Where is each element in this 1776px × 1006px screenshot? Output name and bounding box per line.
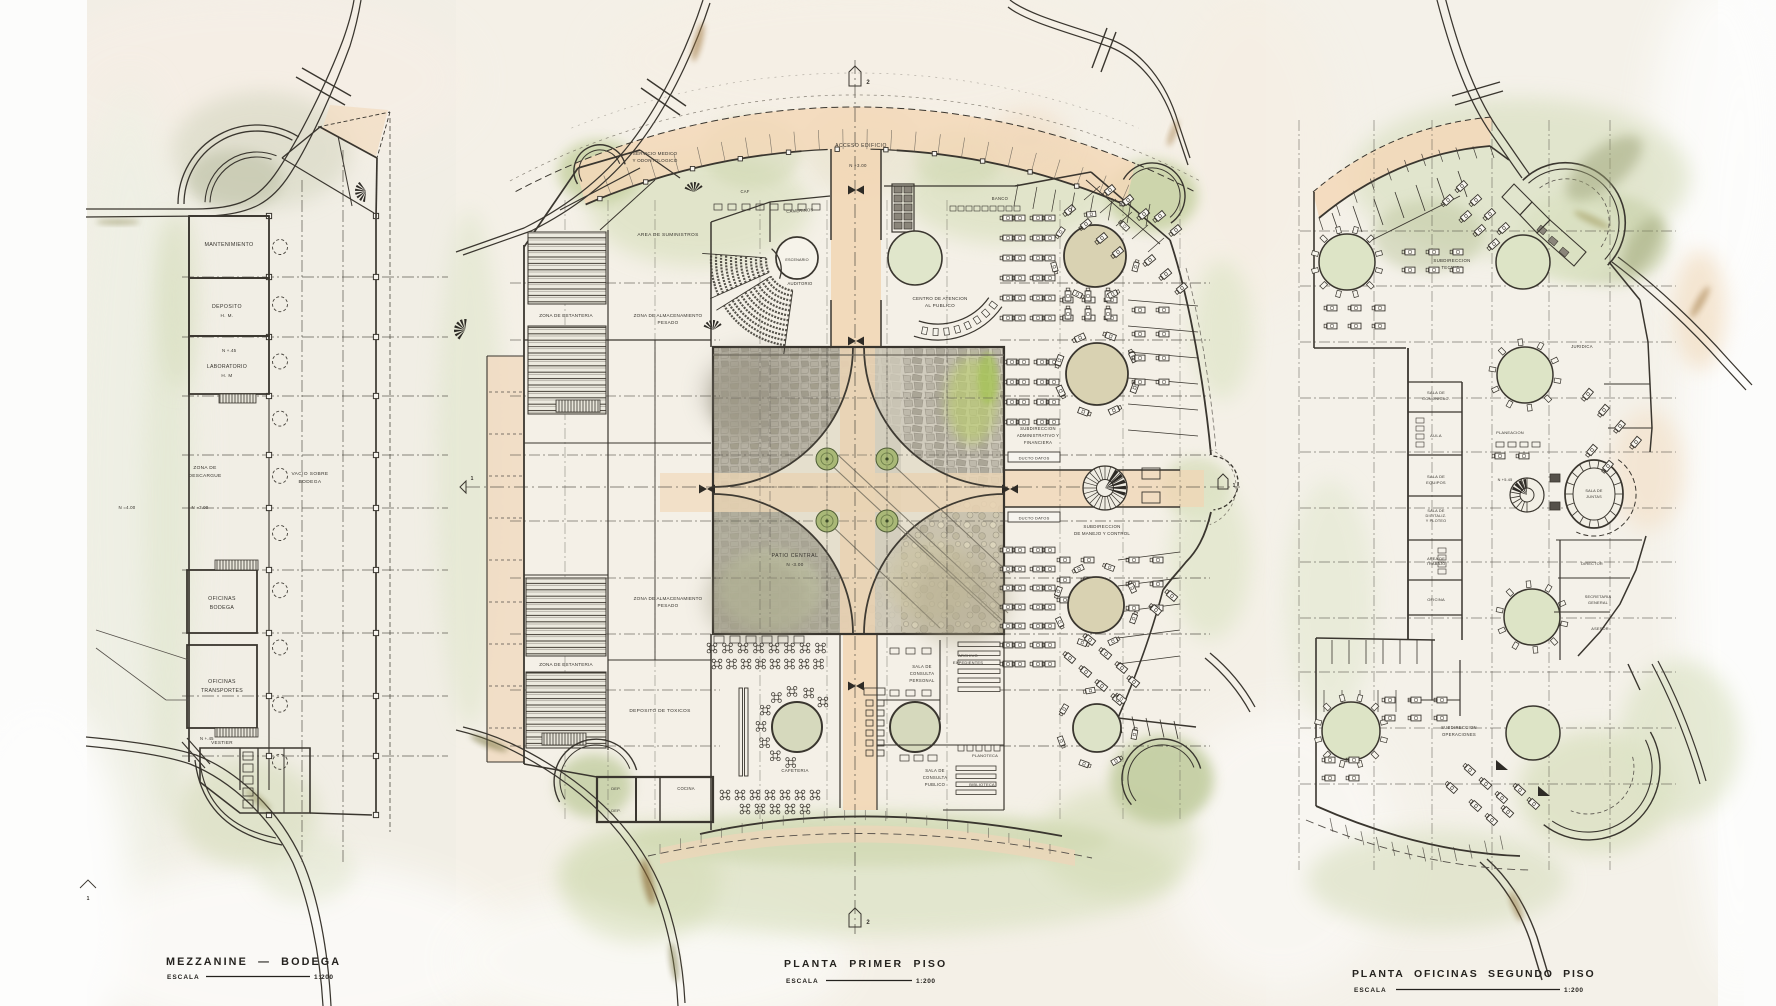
svg-text:DEP.: DEP. — [611, 808, 621, 813]
svg-text:ACCESO EDIFICIO: ACCESO EDIFICIO — [835, 143, 887, 149]
svg-text:MEZZANINE — BODEGA: MEZZANINE — BODEGA — [166, 956, 341, 968]
svg-text:AULA: AULA — [1430, 433, 1442, 438]
svg-text:CAFETERIA: CAFETERIA — [781, 768, 808, 773]
svg-text:DE MANEJO Y CONTROL: DE MANEJO Y CONTROL — [1074, 531, 1130, 536]
svg-text:AREA DE SUMINISTROS: AREA DE SUMINISTROS — [637, 232, 698, 238]
svg-text:AL PUBLICO: AL PUBLICO — [925, 303, 955, 308]
svg-text:SALA DE: SALA DE — [1427, 474, 1445, 479]
svg-text:1: 1 — [87, 896, 90, 902]
svg-text:ASESOR: ASESOR — [1591, 626, 1608, 631]
svg-text:OFICINA: OFICINA — [1427, 597, 1445, 602]
svg-text:DIGITALIZ.: DIGITALIZ. — [1426, 514, 1447, 518]
svg-text:PLANEACION: PLANEACION — [1496, 430, 1524, 435]
svg-text:N +3.00: N +3.00 — [849, 163, 867, 168]
svg-text:Y PLOTEO: Y PLOTEO — [1426, 519, 1447, 523]
svg-text:OPERACIONES: OPERACIONES — [1442, 732, 1476, 737]
svg-text:JUNTAS: JUNTAS — [1586, 495, 1602, 499]
svg-text:CONSULTA: CONSULTA — [910, 671, 935, 676]
svg-text:SALA DE: SALA DE — [925, 768, 945, 773]
svg-text:PLANTA PRIMER PISO: PLANTA PRIMER PISO — [784, 958, 947, 970]
svg-text:BANCO: BANCO — [992, 196, 1009, 201]
svg-text:DEP.: DEP. — [611, 786, 621, 791]
svg-text:SALA DE: SALA DE — [1427, 509, 1444, 513]
svg-text:N +5.45: N +5.45 — [1498, 478, 1513, 482]
svg-text:SUBDIRECCION: SUBDIRECCION — [1083, 524, 1120, 529]
svg-text:Y ODONTOLOGICO: Y ODONTOLOGICO — [632, 158, 677, 163]
svg-text:ZONA DE ALMACENAMIENTO: ZONA DE ALMACENAMIENTO — [634, 313, 703, 318]
svg-text:AUDITORIO: AUDITORIO — [788, 281, 814, 286]
svg-text:SUBDIRECCION: SUBDIRECCION — [1433, 258, 1470, 263]
svg-text:DEPOSITO DE TOXICOS: DEPOSITO DE TOXICOS — [629, 708, 690, 714]
svg-text:1: 1 — [471, 476, 474, 482]
svg-text:SUBDIRECCION: SUBDIRECCION — [1020, 426, 1056, 431]
svg-text:SALA DE: SALA DE — [912, 664, 932, 669]
svg-text:COCINA: COCINA — [677, 786, 695, 791]
svg-text:N -3.00: N -3.00 — [786, 562, 803, 567]
svg-text:1: 1 — [1233, 483, 1236, 489]
svg-text:CENTRO DE ATENCION: CENTRO DE ATENCION — [912, 296, 967, 301]
svg-text:ZONA DE ESTANTERIA: ZONA DE ESTANTERIA — [539, 313, 593, 318]
svg-text:AREA DE: AREA DE — [1427, 557, 1445, 561]
svg-text:N =4.00: N =4.00 — [119, 505, 136, 510]
svg-text:ZONA DE: ZONA DE — [193, 465, 216, 471]
svg-text:PLANTA OFICINAS SEGUNDO PIS: PLANTA OFICINAS SEGUNDO PISO — [1352, 968, 1595, 980]
svg-text:1:200: 1:200 — [916, 978, 936, 985]
svg-text:SALA DE: SALA DE — [1427, 390, 1445, 395]
svg-text:PLANOTECA: PLANOTECA — [972, 753, 998, 758]
svg-text:PERSONAL: PERSONAL — [909, 678, 935, 683]
svg-text:EQUIPOS: EQUIPOS — [1426, 480, 1446, 485]
svg-text:ESCENARIO: ESCENARIO — [785, 258, 808, 262]
svg-text:1:200: 1:200 — [314, 974, 334, 981]
svg-text:CONSULTA: CONSULTA — [923, 775, 948, 780]
svg-text:MANTENIMIENTO: MANTENIMIENTO — [204, 242, 253, 248]
svg-text:TRANSPORTES: TRANSPORTES — [201, 688, 243, 694]
svg-text:N +.45: N +.45 — [222, 348, 237, 353]
svg-text:SALA DE: SALA DE — [1585, 489, 1602, 493]
svg-text:BODEGA: BODEGA — [210, 605, 235, 611]
svg-text:H. M: H. M — [221, 373, 232, 378]
svg-text:VACIO SOBRE: VACIO SOBRE — [291, 471, 328, 477]
svg-text:BODEGA: BODEGA — [299, 479, 322, 485]
svg-text:DESCARGUE: DESCARGUE — [188, 473, 221, 479]
svg-text:SUBDIRECCION: SUBDIRECCION — [1441, 725, 1477, 730]
svg-text:DUCTO DATOS: DUCTO DATOS — [1019, 516, 1050, 521]
svg-text:FINANCIERA: FINANCIERA — [1024, 440, 1052, 445]
svg-text:TRABAJO: TRABAJO — [1427, 562, 1446, 566]
svg-text:DUCTO DATOS: DUCTO DATOS — [1019, 456, 1050, 461]
svg-text:OFICINAS: OFICINAS — [208, 679, 236, 685]
svg-text:PUBLICO: PUBLICO — [925, 782, 946, 787]
svg-text:SERVICIO MEDICO: SERVICIO MEDICO — [633, 151, 678, 156]
svg-text:PESADO: PESADO — [658, 320, 679, 325]
svg-text:N +.45: N +.45 — [200, 736, 214, 741]
svg-text:H. M.: H. M. — [221, 313, 234, 318]
svg-text:PESADO: PESADO — [658, 603, 679, 608]
svg-text:SECRETARIA: SECRETARIA — [1585, 594, 1612, 599]
svg-text:ZONA DE ESTANTERIA: ZONA DE ESTANTERIA — [539, 662, 593, 667]
svg-text:PATIO CENTRAL: PATIO CENTRAL — [772, 553, 819, 559]
svg-text:ESCALA: ESCALA — [786, 978, 819, 985]
svg-text:OFICINAS: OFICINAS — [208, 596, 236, 602]
svg-text:JURIDICA: JURIDICA — [1571, 344, 1593, 349]
svg-text:GENERAL: GENERAL — [1588, 600, 1609, 605]
svg-text:ZONA DE ALMACENAMIENTO: ZONA DE ALMACENAMIENTO — [634, 596, 703, 601]
svg-text:CAF: CAF — [741, 189, 750, 194]
svg-text:VESTIER: VESTIER — [211, 740, 233, 745]
svg-text:LABORATORIO: LABORATORIO — [207, 364, 247, 370]
svg-text:COMUNICAC.: COMUNICAC. — [1422, 396, 1450, 401]
svg-text:1:200: 1:200 — [1564, 987, 1584, 994]
svg-text:N =3.00: N =3.00 — [192, 505, 209, 510]
svg-text:ESCALA: ESCALA — [1354, 987, 1387, 994]
svg-text:DIRECTOR: DIRECTOR — [1581, 561, 1603, 566]
svg-text:DEPOSITO: DEPOSITO — [212, 304, 242, 310]
svg-text:ADMINISTRATIVO Y: ADMINISTRATIVO Y — [1017, 433, 1059, 438]
svg-text:ESCALA: ESCALA — [167, 974, 200, 981]
